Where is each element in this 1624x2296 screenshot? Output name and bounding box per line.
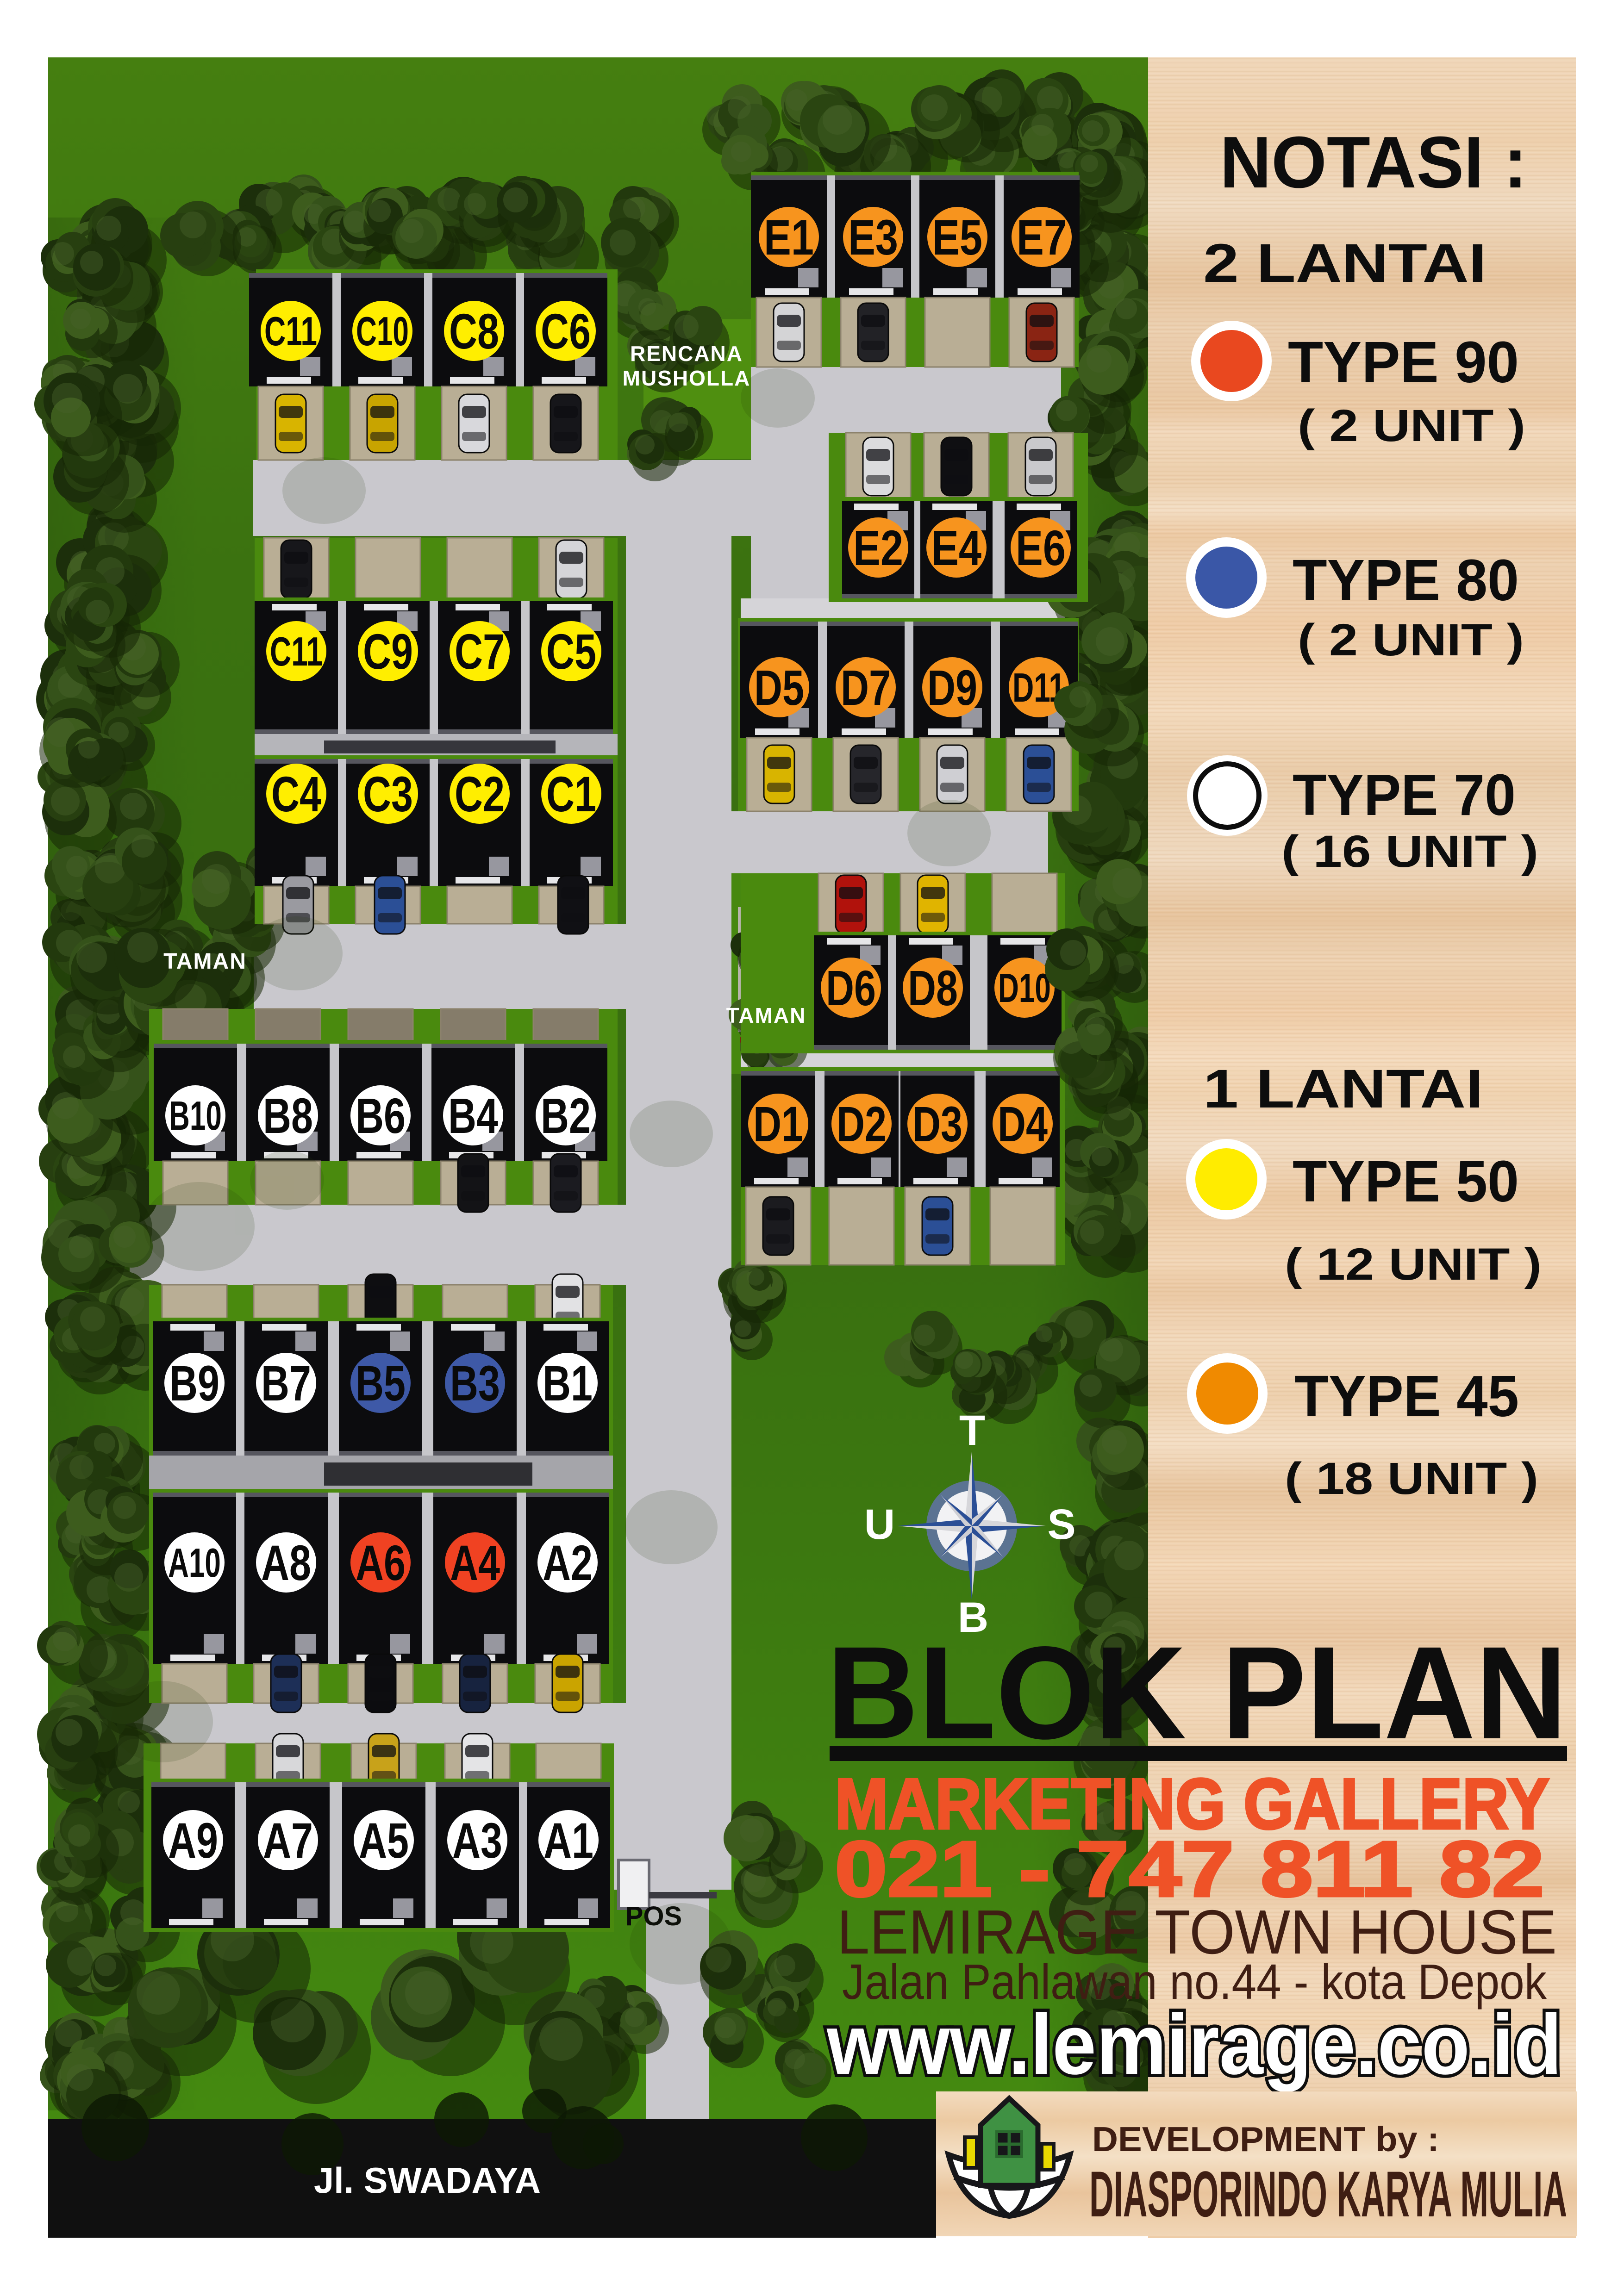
svg-text:C7: C7: [455, 623, 505, 679]
svg-text:D8: D8: [908, 960, 958, 1016]
svg-text:A3: A3: [452, 1812, 502, 1868]
svg-text:C1: C1: [546, 766, 596, 822]
svg-text:A9: A9: [168, 1812, 218, 1868]
svg-text:B2: B2: [541, 1088, 591, 1144]
svg-text:1 LANTAI: 1 LANTAI: [1203, 1058, 1483, 1120]
svg-text:C3: C3: [363, 766, 413, 822]
svg-text:C2: C2: [455, 766, 505, 822]
svg-text:TYPE 90: TYPE 90: [1288, 330, 1519, 395]
svg-text:( 16 UNIT ): ( 16 UNIT ): [1281, 826, 1538, 877]
svg-text:B3: B3: [450, 1355, 500, 1411]
svg-text:A2: A2: [543, 1535, 593, 1591]
svg-text:( 12 UNIT ): ( 12 UNIT ): [1285, 1239, 1542, 1289]
svg-text:( 18 UNIT ): ( 18 UNIT ): [1285, 1453, 1538, 1504]
svg-text:Jl. SWADAYA: Jl. SWADAYA: [314, 2160, 541, 2201]
svg-text:C5: C5: [546, 623, 596, 679]
svg-text:www.lemirage.co.id: www.lemirage.co.id: [826, 1997, 1562, 2092]
svg-text:B7: B7: [261, 1355, 311, 1411]
svg-text:2 LANTAI: 2 LANTAI: [1203, 233, 1487, 294]
svg-text:E1: E1: [764, 209, 814, 265]
svg-text:D7: D7: [841, 660, 891, 716]
svg-text:S: S: [1047, 1501, 1075, 1548]
svg-text:E2: E2: [853, 520, 903, 576]
svg-text:A10: A10: [168, 1540, 221, 1586]
svg-text:A1: A1: [543, 1812, 593, 1868]
svg-text:D1: D1: [753, 1096, 803, 1152]
svg-text:( 2 UNIT ): ( 2 UNIT ): [1298, 615, 1524, 665]
svg-text:C11: C11: [270, 628, 323, 674]
svg-text:NOTASI :: NOTASI :: [1220, 122, 1527, 203]
svg-text:BLOK PLAN: BLOK PLAN: [827, 1619, 1567, 1767]
svg-text:A7: A7: [263, 1812, 313, 1868]
svg-text:MUSHOLLA: MUSHOLLA: [623, 366, 751, 390]
svg-text:B5: B5: [356, 1355, 406, 1411]
svg-text:B6: B6: [356, 1088, 406, 1144]
svg-text:TYPE 50: TYPE 50: [1293, 1149, 1519, 1214]
svg-text:A6: A6: [356, 1535, 406, 1591]
svg-text:DIASPORINDO KARYA MULIA: DIASPORINDO KARYA MULIA: [1089, 2158, 1567, 2230]
svg-text:B8: B8: [263, 1088, 313, 1144]
svg-text:D10: D10: [998, 965, 1051, 1011]
svg-text:TAMAN: TAMAN: [163, 949, 247, 974]
svg-text:C9: C9: [363, 623, 413, 679]
svg-text:C11: C11: [264, 308, 317, 354]
svg-text:D5: D5: [754, 660, 804, 716]
svg-text:DEVELOPMENT by :: DEVELOPMENT by :: [1092, 2120, 1439, 2159]
svg-text:C8: C8: [449, 303, 499, 359]
svg-text:D3: D3: [912, 1096, 962, 1152]
svg-text:RENCANA: RENCANA: [630, 342, 743, 366]
svg-text:E7: E7: [1017, 209, 1067, 265]
svg-text:B10: B10: [169, 1093, 222, 1139]
svg-text:A8: A8: [261, 1535, 311, 1591]
svg-text:E6: E6: [1016, 520, 1066, 576]
svg-text:D9: D9: [927, 660, 977, 716]
svg-text:A5: A5: [359, 1812, 409, 1868]
svg-text:TYPE 70: TYPE 70: [1293, 762, 1516, 828]
svg-text:D4: D4: [998, 1096, 1048, 1152]
svg-text:D6: D6: [826, 960, 876, 1016]
svg-text:A4: A4: [450, 1535, 500, 1591]
svg-text:E4: E4: [931, 520, 981, 576]
svg-text:TYPE 45: TYPE 45: [1294, 1363, 1519, 1429]
svg-text:T: T: [959, 1407, 985, 1454]
svg-text:B9: B9: [169, 1355, 219, 1411]
svg-text:E3: E3: [848, 209, 898, 265]
svg-text:E5: E5: [932, 209, 982, 265]
svg-text:TAMAN: TAMAN: [726, 1003, 806, 1027]
svg-text:D2: D2: [837, 1096, 887, 1152]
svg-text:B1: B1: [543, 1355, 593, 1411]
svg-text:TYPE 80: TYPE 80: [1293, 548, 1519, 613]
svg-text:C10: C10: [356, 308, 409, 354]
svg-text:C6: C6: [541, 303, 591, 359]
svg-text:B4: B4: [448, 1088, 498, 1144]
svg-text:U: U: [864, 1501, 895, 1548]
svg-text:( 2 UNIT ): ( 2 UNIT ): [1298, 400, 1525, 451]
svg-text:C4: C4: [271, 766, 321, 822]
